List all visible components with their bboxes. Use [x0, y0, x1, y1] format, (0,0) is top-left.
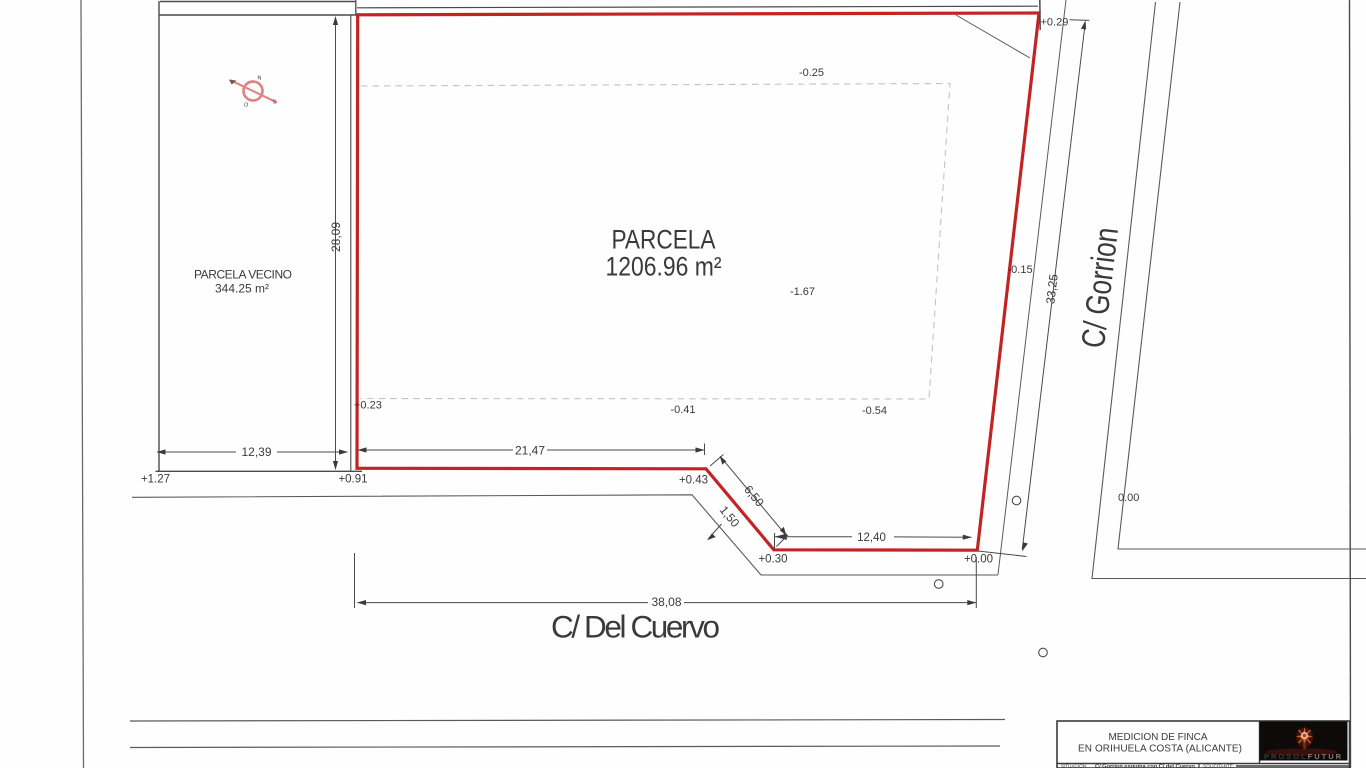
svg-text:21,47: 21,47 [515, 444, 545, 458]
svg-text:+0.91: +0.91 [338, 474, 367, 486]
svg-text:38,08: 38,08 [651, 595, 681, 609]
svg-text:+0.43: +0.43 [679, 475, 708, 487]
svg-text:N: N [258, 76, 262, 82]
svg-text:+0.29: +0.29 [1041, 17, 1069, 29]
svg-text:+0.23: +0.23 [354, 400, 382, 412]
svg-text:-0.15: -0.15 [1008, 264, 1033, 276]
svg-text:C/ Del Cuervo: C/ Del Cuervo [551, 609, 720, 645]
svg-text:344.25 m²: 344.25 m² [215, 282, 269, 296]
svg-text:PROSOLFUTUR: PROSOLFUTUR [1264, 752, 1343, 761]
svg-text:C/ Gorrion esquina con C/ del: C/ Gorrion esquina con C/ del Cuervo [1095, 764, 1195, 768]
svg-text:O: O [244, 103, 249, 109]
svg-text:SITUACION:: SITUACION: [1061, 764, 1087, 768]
svg-text:1206.96 m²: 1206.96 m² [606, 252, 722, 282]
svg-text:S: S [273, 100, 277, 106]
svg-text:PARCELA VECINO: PARCELA VECINO [194, 268, 292, 282]
svg-text:28,09: 28,09 [329, 222, 343, 252]
svg-text:+0.30: +0.30 [758, 554, 787, 566]
svg-text:+0.00: +0.00 [964, 554, 993, 566]
svg-text:-0.25: -0.25 [799, 67, 824, 79]
svg-text:-1.67: -1.67 [790, 286, 815, 298]
svg-text:0.00: 0.00 [1118, 492, 1139, 504]
svg-text:MEDICION DE FINCA: MEDICION DE FINCA [1109, 732, 1208, 743]
svg-text:12,39: 12,39 [241, 445, 271, 459]
svg-text:PARCELA: PARCELA [612, 225, 716, 255]
svg-text:12,40: 12,40 [857, 532, 886, 544]
svg-text:-0.54: -0.54 [862, 405, 887, 417]
svg-text:EN ORIHUELA COSTA (ALICANTE): EN ORIHUELA COSTA (ALICANTE) [1078, 744, 1242, 755]
svg-text:+1.27: +1.27 [141, 474, 170, 486]
svg-text:-0.41: -0.41 [670, 404, 695, 416]
svg-text:SOLICITANTE:: SOLICITANTE: [1203, 764, 1234, 768]
